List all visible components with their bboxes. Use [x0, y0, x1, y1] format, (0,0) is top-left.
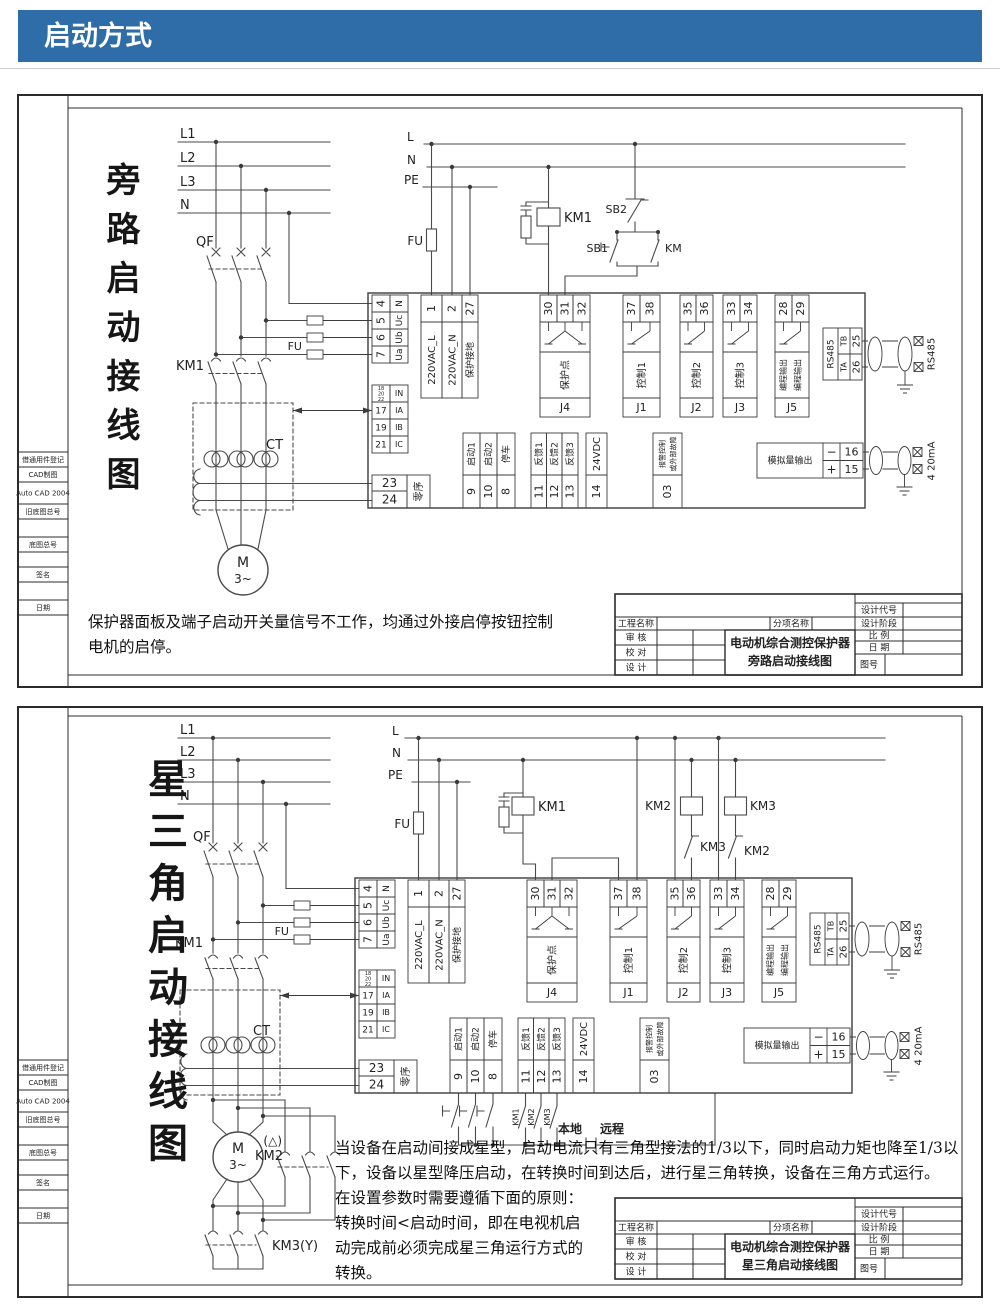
- term-11: 11: [519, 1070, 532, 1084]
- phase-l1-label: L1: [180, 127, 196, 142]
- label-220vac-l: 220VAC_L: [414, 920, 425, 970]
- j5-func2: 编程输出: [780, 944, 790, 976]
- ctl-l-label: L: [392, 724, 399, 738]
- sig-ic: IC: [382, 1025, 390, 1034]
- term-6: 6: [362, 919, 375, 926]
- term-33: 33: [712, 887, 725, 901]
- phase-l2-label: L2: [180, 151, 196, 166]
- term-29: 29: [794, 302, 807, 316]
- di-fb1: 反馈1: [533, 442, 545, 466]
- sidebar-label: 底图总号: [29, 1148, 57, 1157]
- relay-j4: 30 31 32 保护点 J4: [540, 295, 590, 417]
- panel1-control-circuit: [423, 144, 905, 295]
- ctl-fu-label: FU: [407, 234, 423, 248]
- diagram2-note-wide: 当设备在启动间接成星型，启动电流只有三角型接法的1/3以下，同时启动力矩也降至1…: [335, 1136, 1000, 1186]
- analog-ext-label: 4 20mA: [913, 1026, 924, 1065]
- j1-func: 控制1: [622, 947, 635, 973]
- ct-arrow: [280, 993, 359, 999]
- term-9: 9: [465, 488, 478, 495]
- phase-l3-label: L3: [180, 175, 196, 190]
- tb-fig: 图号: [860, 1263, 878, 1274]
- zero-seq-terminals: 23 24 零序: [372, 475, 430, 508]
- tb-review: 审 核: [626, 631, 647, 643]
- term-36: 36: [685, 887, 698, 901]
- term-35: 35: [682, 302, 695, 316]
- tb-date: 日 期: [869, 1246, 890, 1257]
- km-aux-label: KM: [665, 242, 682, 255]
- term-36: 36: [698, 302, 711, 316]
- aux-km3-label: KM3: [543, 1108, 552, 1125]
- panel1-power-lines: [178, 142, 372, 304]
- motor-label: M: [237, 555, 249, 571]
- term-5: 5: [362, 902, 375, 909]
- sig-ia: IA: [395, 406, 403, 415]
- diagram1-vertical-title: 旁路启动接线图: [96, 162, 145, 505]
- term-19: 19: [362, 1008, 374, 1018]
- term-29: 29: [781, 887, 794, 901]
- term-1: 1: [425, 305, 438, 312]
- term-21: 21: [375, 440, 386, 450]
- term-31: 31: [546, 887, 559, 901]
- j5-func1: 编程输出: [778, 359, 788, 391]
- sidebar-label: 日期: [36, 1212, 50, 1220]
- j5-name: J5: [773, 986, 784, 999]
- panel1-frame: [18, 95, 982, 687]
- di-fb2: 反馈2: [548, 442, 560, 466]
- note-line: 在设置参数时需要遵循下面的原则：: [335, 1186, 630, 1211]
- term-4: 4: [362, 885, 375, 892]
- analog-plus: +: [826, 462, 836, 476]
- ctl-l-label: L: [407, 130, 414, 144]
- motor-label: M: [232, 1141, 244, 1157]
- di-fb3: 反馈3: [551, 1027, 563, 1051]
- tb-project: 工程名称: [618, 617, 654, 629]
- label-pe: 保护接地: [451, 927, 463, 963]
- rs485-ext-label: RS485: [913, 923, 924, 955]
- km3-coil-label: KM3: [750, 799, 776, 813]
- di-fb3: 反馈3: [564, 442, 576, 466]
- term-28: 28: [764, 887, 777, 901]
- diagram1-note: 保护器面板及端子启动开关量信号不工作，均通过外接启停按钮控制 电机的启停。: [88, 610, 598, 660]
- term-17: 17: [362, 991, 373, 1001]
- term-25: 25: [851, 335, 862, 348]
- sidebar-label: CAD制图: [28, 1078, 57, 1087]
- j5-func2: 编程输出: [793, 359, 803, 391]
- ct-label: CT: [266, 438, 283, 453]
- analog-label: 模拟量输出: [767, 454, 812, 466]
- tb-code: 设计代号: [861, 1208, 897, 1220]
- voltage-terminals: 4 N 5 Uc 6 Ub 7 Ua: [359, 880, 395, 948]
- term-16: 16: [832, 1031, 846, 1044]
- sidebar-label: 签名: [36, 1178, 50, 1187]
- sidebar-label: 签名: [36, 570, 50, 579]
- j4-func: 保护点: [545, 945, 558, 975]
- term-24: 24: [369, 1077, 384, 1091]
- sig-ic: IC: [395, 440, 403, 449]
- term-23: 23: [382, 476, 397, 490]
- sidebar-label: Auto CAD 2004: [16, 1097, 70, 1105]
- j4-name: J4: [546, 986, 557, 999]
- tb-scale: 比 例: [869, 629, 890, 641]
- j4-name: J4: [559, 401, 570, 414]
- j5-func1: 编程输出: [765, 944, 775, 976]
- term-37: 37: [625, 302, 638, 316]
- term-32: 32: [576, 302, 589, 316]
- j3-name: J3: [734, 401, 745, 414]
- term-4-sig: N: [395, 300, 405, 307]
- zero-label: 零序: [412, 482, 425, 502]
- di-stop: 停车: [487, 1030, 499, 1048]
- qf-label: QF: [196, 235, 214, 250]
- term-15: 15: [832, 1048, 846, 1061]
- term-33: 33: [725, 302, 738, 316]
- term-23: 23: [369, 1061, 384, 1075]
- tb-drawing-name: 旁路启动接线图: [747, 653, 832, 668]
- term-7-sig: Ua: [382, 933, 392, 945]
- rs485-ta: TA: [827, 947, 836, 958]
- sidebar-label: 借通用件登记: [22, 455, 64, 464]
- km1-coil-label: KM1: [564, 211, 592, 226]
- rs485-tb: TB: [827, 921, 836, 932]
- fu-label: FU: [288, 340, 302, 353]
- rs485-title: RS485: [813, 924, 823, 953]
- term-12: 12: [548, 485, 561, 499]
- rs485-block: RS485 TB TA 25 26 RS485: [810, 913, 924, 978]
- term-32: 32: [563, 887, 576, 901]
- note-line: 保护器面板及端子启动开关量信号不工作，均通过外接启停按钮控制: [88, 610, 598, 635]
- term-03: 03: [648, 1070, 661, 1084]
- analog-ext-label: 4 20mA: [926, 441, 937, 480]
- relay-j2: 35 36 控制2 J2: [680, 295, 713, 417]
- sb1-label: SB1: [586, 242, 608, 255]
- remote-label: 远程: [600, 1121, 624, 1136]
- term-2: 2: [433, 890, 446, 897]
- tb-code: 设计代号: [861, 604, 897, 616]
- term-38: 38: [644, 302, 657, 316]
- di-24vdc: 24VDC: [579, 1022, 590, 1056]
- sb2-label: SB2: [605, 203, 627, 216]
- term-14: 14: [590, 485, 603, 499]
- panel2-zero-seq-ct: [180, 1054, 359, 1100]
- km3-main-label: KM3(Y): [272, 1239, 318, 1254]
- analog-plus: +: [813, 1047, 823, 1061]
- term-13: 13: [564, 485, 577, 499]
- sidebar-label: 底图总号: [29, 540, 57, 549]
- power-terminals: 1 2 27 220VAC_L 220VAC_N 保护接地: [421, 295, 478, 398]
- term-38: 38: [631, 887, 644, 901]
- rs485-block: RS485 TB TA 25 26 RS485: [823, 328, 937, 393]
- alarm-label2: 或外部故障: [655, 1022, 664, 1057]
- term-5-sig: Uc: [382, 900, 392, 912]
- term-10: 10: [469, 1070, 482, 1084]
- digital-input-terminals: 启动1 启动2 停车 9 10 8 反馈1 反馈2 反馈3 11 12 13 2…: [463, 433, 682, 508]
- analog-label: 模拟量输出: [754, 1039, 799, 1051]
- tb-date: 日 期: [869, 642, 890, 653]
- term-37: 37: [612, 887, 625, 901]
- tb-drawing-name: 星三角启动接线图: [742, 1257, 838, 1272]
- term-30: 30: [542, 302, 555, 316]
- term-03: 03: [661, 485, 674, 499]
- term-11: 11: [532, 485, 545, 499]
- term-7: 7: [375, 351, 388, 358]
- note-line: 电机的启停。: [88, 635, 598, 660]
- rs485-title: RS485: [826, 339, 836, 368]
- di-start1: 启动1: [452, 1027, 464, 1051]
- tb-design: 设 计: [626, 661, 647, 673]
- ctl-fu-label: FU: [394, 817, 410, 831]
- term-6: 6: [375, 334, 388, 341]
- panel2-power-lines: [178, 738, 359, 889]
- note-line: 转换。: [335, 1261, 630, 1286]
- diagram2-note-narrow: 在设置参数时需要遵循下面的原则： 转换时间<启动时间，即在电视机启 动完成前必须…: [335, 1186, 630, 1286]
- panel2-ct: [180, 990, 280, 1095]
- term-5-sig: Uc: [395, 315, 405, 327]
- term-2: 2: [446, 305, 459, 312]
- relay-j1: 37 38 控制1 J1: [623, 295, 660, 417]
- j3-func: 控制3: [733, 362, 746, 388]
- panel2-qf-breaker: [204, 843, 267, 953]
- phase-l1-label: L1: [180, 723, 196, 738]
- sidebar-label: 日期: [36, 604, 50, 612]
- term-27: 27: [451, 887, 464, 901]
- relay-j4: 30 31 32 保护点 J4: [527, 880, 577, 1002]
- term-34: 34: [742, 302, 755, 316]
- ct-label: CT: [253, 1024, 270, 1039]
- term-34: 34: [729, 887, 742, 901]
- term-17: 17: [375, 406, 386, 416]
- term-35: 35: [669, 887, 682, 901]
- term-22: 22: [365, 982, 371, 988]
- panel2-titleblock: 设计代号 设计阶段 比 例 日 期 图号 工程名称 分项名称 审 核 校 对 设…: [615, 1198, 962, 1279]
- j1-name: J1: [622, 986, 633, 999]
- delta-label: (△): [263, 1134, 282, 1148]
- term-16: 16: [845, 446, 859, 459]
- j3-func: 控制3: [720, 947, 733, 973]
- power-terminals: 1 2 27 220VAC_L 220VAC_N 保护接地: [408, 880, 465, 983]
- di-fb2: 反馈2: [535, 1027, 547, 1051]
- tb-product-name: 电动机综合测控保护器: [730, 635, 851, 650]
- protector-device: 4 N 5 Uc 6 Ub 7 Ua FU 18 20 22 IN 17: [288, 293, 938, 508]
- ctl-n-label: N: [407, 153, 416, 167]
- aux-km1-label: KM1: [512, 1108, 521, 1125]
- relay-j3: 33 34 控制3 J3: [710, 880, 744, 1002]
- voltage-terminals: 4 N 5 Uc 6 Ub 7 Ua: [372, 295, 408, 363]
- sig-ia: IA: [382, 991, 390, 1000]
- tb-proof: 校 对: [626, 646, 647, 658]
- ctl-pe-label: PE: [404, 173, 419, 187]
- panel1-ct: [193, 403, 293, 510]
- rs485-ext-label: RS485: [926, 338, 937, 370]
- current-terminals: 18 20 22 IN 17 IA 19 IB 21 IC: [359, 970, 395, 1038]
- di-start1: 启动1: [465, 442, 477, 466]
- diagram2-vertical-title: 星三角启动接线图: [135, 758, 193, 1174]
- ctl-n-label: N: [392, 746, 401, 760]
- protector-device-2: 4 N 5 Uc 6 Ub 7 Ua FU 18 20 22 IN 17: [275, 878, 925, 1093]
- term-22: 22: [378, 397, 384, 403]
- term-12: 12: [535, 1070, 548, 1084]
- km1-label: KM1: [176, 359, 204, 374]
- sidebar-label: Auto CAD 2004: [16, 489, 70, 497]
- panel1-titleblock: 设计代号 设计阶段 比 例 日 期 图号 工程名称 分项名称 审 核 校 对 设…: [615, 594, 962, 675]
- j2-func: 控制2: [677, 947, 690, 973]
- term-4-sig: N: [382, 885, 392, 892]
- sidebar-label: 借通用件登记: [22, 1063, 64, 1072]
- j1-func: 控制1: [635, 362, 648, 388]
- note-line: 转换时间<启动时间，即在电视机启: [335, 1211, 630, 1236]
- term-19: 19: [375, 423, 387, 433]
- relay-j3: 33 34 控制3 J3: [723, 295, 757, 417]
- analog-output-block: 模拟量输出 − + 16 15 4 20mA: [757, 441, 937, 495]
- j4-func: 保护点: [558, 360, 571, 390]
- current-terminals: 18 20 22 IN 17 IA 19 IB 21 IC: [372, 385, 408, 453]
- digital-input-terminals: 启动1 启动2 停车 9 10 8 反馈1 反馈2 反馈3 11 12 13 2…: [450, 1018, 669, 1093]
- motor-phase-label: 3~: [229, 1158, 247, 1172]
- term-10: 10: [482, 485, 495, 499]
- relay-j5: 28 29 编程输出 编程输出 J5: [775, 295, 809, 417]
- j2-name: J2: [690, 401, 701, 414]
- term-28: 28: [777, 302, 790, 316]
- analog-minus: −: [813, 1030, 823, 1044]
- term-25: 25: [838, 920, 849, 933]
- label-220vac-n: 220VAC_N: [434, 919, 445, 970]
- note-line: 当设备在启动间接成星型，启动电流只有三角型接法的1/3以下，同时启动力矩也降至1…: [335, 1136, 1000, 1161]
- term-26: 26: [851, 361, 862, 374]
- term-7-sig: Ua: [395, 348, 405, 360]
- tb-subitem: 分项名称: [773, 1221, 809, 1233]
- term-21: 21: [362, 1025, 373, 1035]
- ctl-pe-label: PE: [388, 768, 403, 782]
- aux-km2-label: KM2: [527, 1108, 536, 1125]
- term-1: 1: [412, 890, 425, 897]
- di-24vdc: 24VDC: [592, 437, 603, 471]
- panel2-sidebar: 借通用件登记 CAD制图 Auto CAD 2004 旧底图总号 底图总号 签名…: [16, 1063, 70, 1220]
- km3-interlock-label: KM3: [700, 840, 726, 854]
- term-7: 7: [362, 936, 375, 943]
- km1-coil-label: KM1: [538, 800, 566, 815]
- term-8: 8: [500, 488, 513, 495]
- rs485-tb: TB: [840, 336, 849, 347]
- alarm-label1: 报警控制: [644, 1025, 653, 1053]
- term-31: 31: [559, 302, 572, 316]
- label-220vac-l: 220VAC_L: [427, 335, 438, 385]
- sig-in: IN: [382, 974, 390, 983]
- term-30: 30: [529, 887, 542, 901]
- km2-main-label: KM2: [255, 1149, 283, 1164]
- protector-device: 4 N 5 Uc 6 Ub 7 Ua FU 18 20 22 IN 17: [275, 878, 925, 1093]
- j5-name: J5: [786, 401, 797, 414]
- km2-coil-label: KM2: [645, 799, 671, 813]
- alarm-label1: 报警控制: [657, 440, 666, 468]
- sig-ib: IB: [395, 423, 403, 432]
- relay-j2: 35 36 控制2 J2: [667, 880, 700, 1002]
- tb-stage: 设计阶段: [861, 617, 897, 629]
- di-fb1: 反馈1: [520, 1027, 532, 1051]
- tb-stage: 设计阶段: [861, 1221, 897, 1233]
- ct-arrow: [293, 408, 372, 414]
- tb-fig: 图号: [860, 659, 878, 670]
- local-label: 本地: [558, 1121, 582, 1136]
- term-26: 26: [838, 946, 849, 959]
- relay-j1: 37 38 控制1 J1: [610, 880, 647, 1002]
- panel1-zero-seq-ct: [193, 469, 372, 515]
- term-13: 13: [551, 1070, 564, 1084]
- term-6-sig: Ub: [395, 331, 405, 344]
- motor-phase-label: 3~: [234, 572, 252, 586]
- sig-ib: IB: [382, 1008, 390, 1017]
- term-15: 15: [845, 463, 859, 476]
- qf-label: QF: [193, 830, 211, 845]
- analog-minus: −: [826, 445, 836, 459]
- panel1-sidebar: 借通用件登记 CAD制图 Auto CAD 2004 旧底图总号 底图总号 签名…: [16, 455, 70, 612]
- sidebar-label: 旧底图总号: [26, 1115, 61, 1124]
- fu-label: FU: [275, 925, 289, 938]
- term-27: 27: [464, 302, 477, 316]
- relay-j5: 28 29 编程输出 编程输出 J5: [762, 880, 796, 1002]
- zero-seq-terminals: 23 24 零序: [359, 1060, 417, 1093]
- phase-n-label: N: [180, 198, 190, 213]
- j3-name: J3: [721, 986, 732, 999]
- j1-name: J1: [635, 401, 646, 414]
- term-24: 24: [382, 492, 397, 506]
- panel1-qf-breaker: [207, 248, 270, 356]
- term-5: 5: [375, 317, 388, 324]
- sidebar-label: 旧底图总号: [26, 507, 61, 516]
- di-start2: 启动2: [469, 1027, 481, 1051]
- j2-name: J2: [677, 986, 688, 999]
- label-220vac-n: 220VAC_N: [447, 334, 458, 385]
- term-6-sig: Ub: [382, 916, 392, 929]
- analog-output-block: 模拟量输出 − + 16 15 4 20mA: [744, 1026, 924, 1080]
- term-4: 4: [375, 300, 388, 307]
- zero-label: 零序: [399, 1067, 412, 1087]
- sig-in: IN: [395, 389, 403, 398]
- di-start2: 启动2: [482, 442, 494, 466]
- tb-product-name: 电动机综合测控保护器: [730, 1239, 851, 1254]
- km2-interlock-label: KM2: [744, 844, 770, 858]
- tb-scale: 比 例: [869, 1233, 890, 1245]
- j2-func: 控制2: [690, 362, 703, 388]
- note-line: 动完成前必须完成星三角运行方式的: [335, 1236, 630, 1261]
- rs485-ta: TA: [840, 362, 849, 373]
- term-9: 9: [452, 1073, 465, 1080]
- sidebar-label: CAD制图: [28, 470, 57, 479]
- label-pe: 保护接地: [464, 342, 476, 378]
- note-line: 下，设备以星型降压启动，在转换时间到达后，进行星三角转换，设备在三角方式运行。: [335, 1161, 1000, 1186]
- alarm-label2: 或外部故障: [668, 437, 677, 472]
- di-stop: 停车: [500, 445, 512, 463]
- panel1-km1-contactor: [208, 358, 271, 510]
- tb-subitem: 分项名称: [773, 617, 809, 629]
- term-8: 8: [487, 1073, 500, 1080]
- term-14: 14: [577, 1070, 590, 1084]
